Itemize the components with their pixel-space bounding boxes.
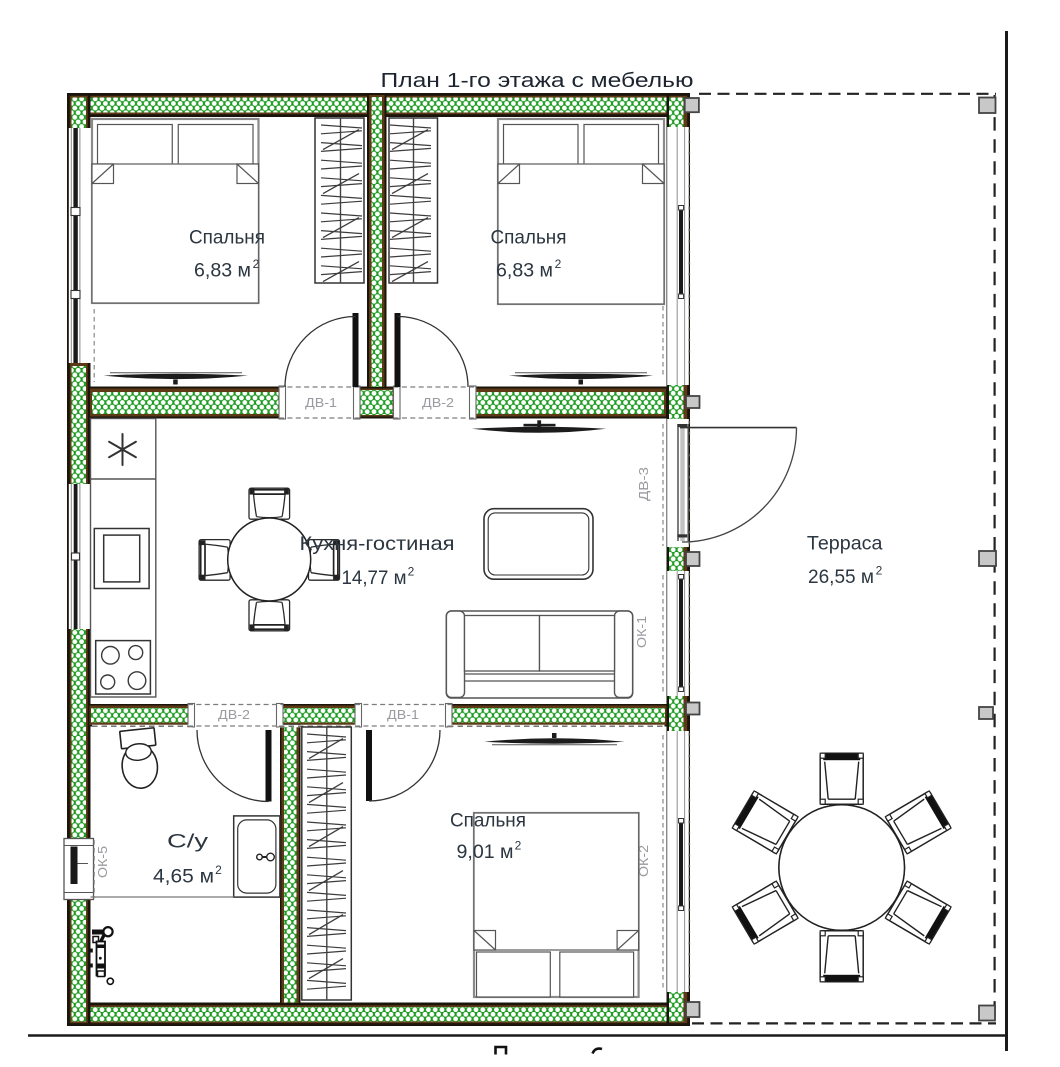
svg-text:ДВ-3: ДВ-3	[636, 467, 651, 501]
svg-text:ДВ-2: ДВ-2	[422, 395, 454, 410]
svg-text:2: 2	[408, 565, 415, 579]
svg-text:14,77 м: 14,77 м	[342, 567, 407, 589]
svg-text:С/у: С/у	[167, 831, 208, 853]
svg-text:Терраса: Терраса	[807, 533, 883, 555]
svg-text:Спальня: Спальня	[450, 810, 526, 832]
svg-text:6,83 м: 6,83 м	[496, 260, 553, 282]
svg-text:2: 2	[555, 257, 562, 271]
svg-text:26,55 м: 26,55 м	[808, 566, 874, 588]
svg-text:2: 2	[515, 839, 522, 853]
svg-text:Спальня: Спальня	[189, 227, 265, 249]
svg-text:План 1-го этажа с мебелью: План 1-го этажа с мебелью	[381, 70, 694, 92]
svg-text:ОК-1: ОК-1	[634, 616, 649, 648]
svg-text:Кухня-гостиная: Кухня-гостиная	[300, 533, 455, 555]
svg-text:2: 2	[253, 257, 260, 271]
svg-text:Спальня: Спальня	[491, 227, 567, 249]
svg-text:2: 2	[876, 564, 883, 578]
svg-text:ОК-5: ОК-5	[95, 846, 110, 878]
svg-text:9,01 м: 9,01 м	[457, 841, 514, 863]
svg-text:ДВ-1: ДВ-1	[387, 707, 419, 722]
svg-text:ДВ-1: ДВ-1	[305, 395, 337, 410]
svg-text:2: 2	[215, 863, 222, 877]
svg-text:ДВ-2: ДВ-2	[218, 707, 250, 722]
svg-text:6,83 м: 6,83 м	[194, 260, 251, 282]
svg-text:4,65 м: 4,65 м	[153, 866, 214, 888]
